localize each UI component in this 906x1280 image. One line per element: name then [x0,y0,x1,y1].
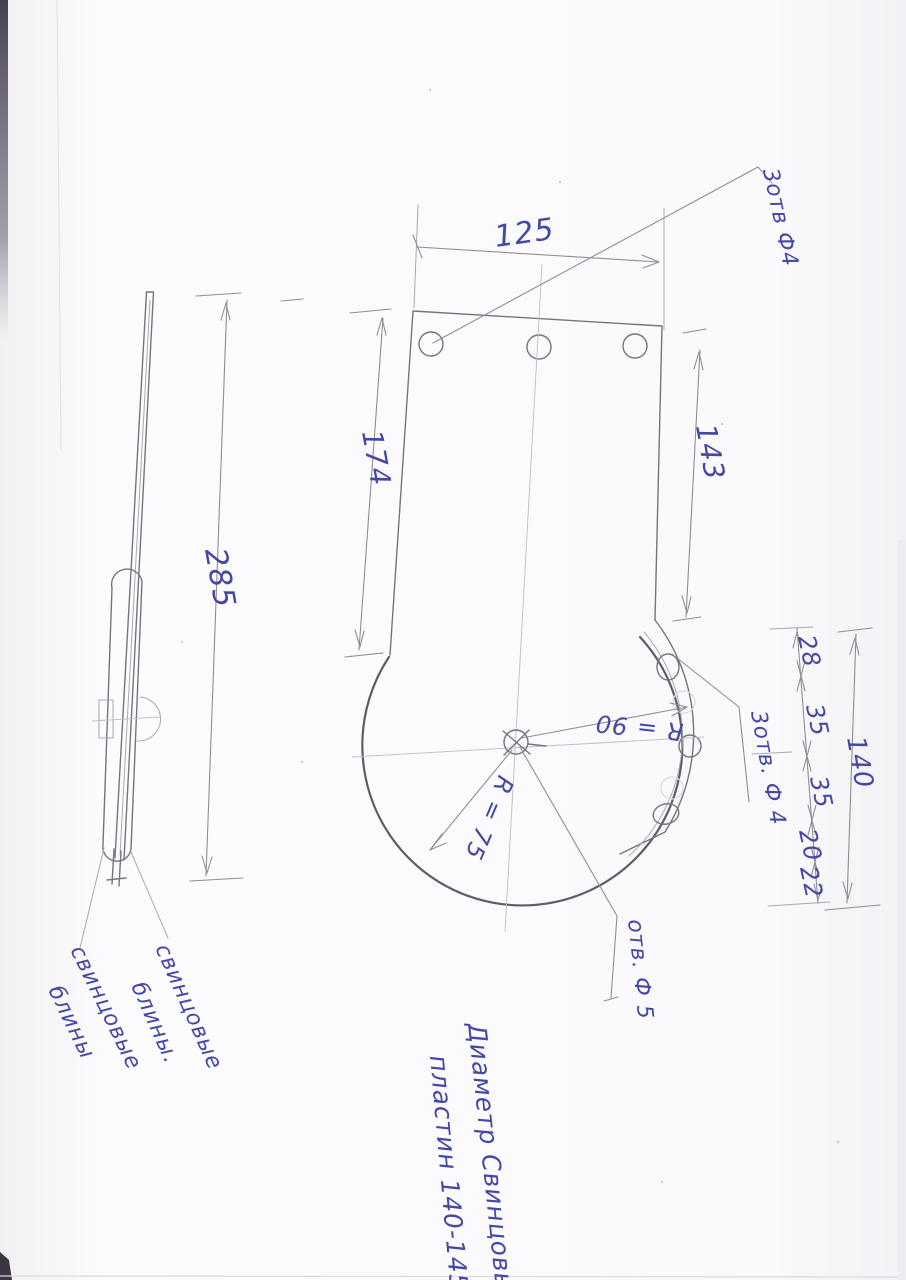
scanned-drawing-page: 285 R = 90 R = 75 [0,0,906,1280]
technical-drawing-canvas: 285 R = 90 R = 75 [0,0,906,1280]
scan-speck [661,1181,663,1183]
scan-speck [301,761,303,763]
scan-right-shade [898,540,906,1280]
scan-speck [429,89,431,91]
scan-edge-strip [0,0,8,340]
scan-speck [837,1141,840,1144]
scan-speck [181,641,183,643]
scan-speck [559,181,561,183]
